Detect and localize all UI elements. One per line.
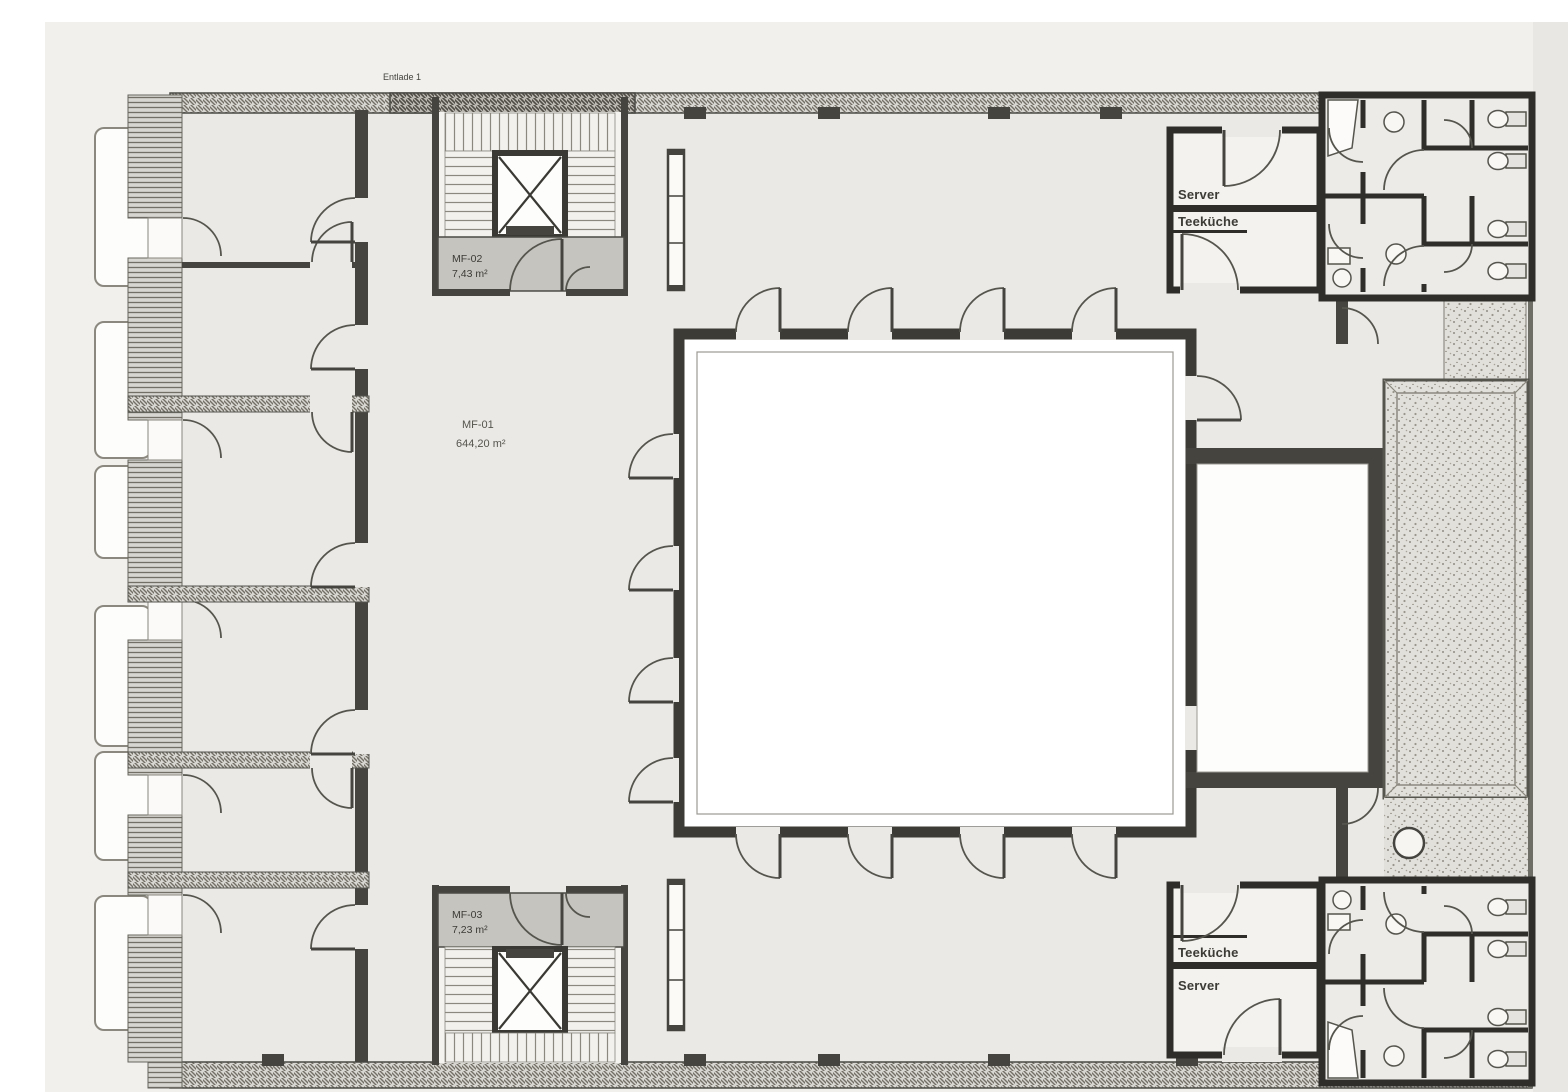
- room-divider-hatched: [128, 872, 369, 888]
- stair-flight-left: [445, 947, 495, 1033]
- partition-wall-bottom: [668, 880, 684, 1030]
- stair-bottom-size: 7,23 m²: [452, 924, 488, 936]
- wc-fixture: [1328, 914, 1350, 930]
- toilet-bowl: [1488, 941, 1508, 958]
- main-area-code: MF-01: [462, 419, 494, 431]
- stair-treads-bottom: [445, 1033, 615, 1062]
- wc-block-top: [1322, 95, 1532, 298]
- vestibule-wall-stub: [432, 289, 510, 296]
- sink: [1384, 1046, 1404, 1066]
- partition-wall-top: [668, 150, 684, 290]
- toilet-bowl: [1488, 221, 1508, 238]
- main-area-size: 644,20 m²: [456, 438, 506, 450]
- toilet-bowl: [1488, 111, 1508, 128]
- vestibule-wall-stub: [432, 886, 510, 893]
- top-exterior-wall-dark-segment: [390, 93, 635, 113]
- elevator-door: [506, 226, 554, 235]
- stair-flight-right: [565, 947, 615, 1033]
- toilet-bowl: [1488, 263, 1508, 280]
- room-divider: [1167, 205, 1323, 212]
- toilet-bowl: [1488, 899, 1508, 916]
- stair-bottom-code: MF-03: [452, 909, 482, 921]
- elevator-door: [506, 949, 554, 958]
- stair-flight-left: [445, 151, 495, 237]
- stair-flight-right: [565, 151, 615, 237]
- room-label-server: Server: [1178, 978, 1220, 993]
- room-label-teekueche: Teeküche: [1178, 945, 1239, 960]
- toilet-bowl: [1488, 1009, 1508, 1026]
- atrium-walls: [679, 334, 1191, 832]
- vestibule-wall-stub: [566, 289, 628, 296]
- vestibule-wall-stub: [566, 886, 628, 893]
- wc-fixture: [1328, 248, 1350, 264]
- terrace-frame: [1384, 380, 1528, 798]
- central-atrium: [629, 288, 1241, 878]
- connector-wall-bottom: [1336, 788, 1348, 880]
- sink: [1384, 112, 1404, 132]
- core-wall-bottom: [1186, 772, 1392, 788]
- room-label-server: Server: [1178, 187, 1220, 202]
- wc-block-bottom: [1322, 880, 1532, 1083]
- core-room: [1197, 464, 1368, 772]
- paper-right-margin: [1533, 22, 1568, 1092]
- top-exterior-wall: [170, 93, 1322, 113]
- toilet-bowl: [1488, 153, 1508, 170]
- stair-top-size: 7,43 m²: [452, 268, 488, 280]
- stair-top-code: MF-02: [452, 253, 482, 265]
- block-server-teekueche-top: Server Teeküche: [1167, 122, 1323, 298]
- sink: [1386, 244, 1406, 264]
- sink: [1333, 891, 1351, 909]
- toilet-bowl: [1488, 1051, 1508, 1068]
- sink: [1386, 914, 1406, 934]
- section-marker-label: Entlade 1: [383, 72, 421, 82]
- column: [1394, 828, 1424, 858]
- core-wall-top: [1186, 448, 1392, 464]
- room-block-outline: [1170, 885, 1320, 1055]
- floor-plan-canvas: MF-02 7,43 m² MF-03 7,23 m²: [0, 0, 1568, 1092]
- sink: [1333, 269, 1351, 287]
- stairwell-top: MF-02 7,43 m²: [432, 97, 628, 296]
- stairwell-bottom: MF-03 7,23 m²: [432, 885, 628, 1065]
- block-server-teekueche-bottom: Teeküche Server: [1167, 878, 1323, 1062]
- room-label-teekueche: Teeküche: [1178, 214, 1239, 229]
- stair-treads-top: [445, 113, 615, 151]
- room-divider: [1167, 962, 1323, 969]
- label-band-line: [1167, 230, 1247, 233]
